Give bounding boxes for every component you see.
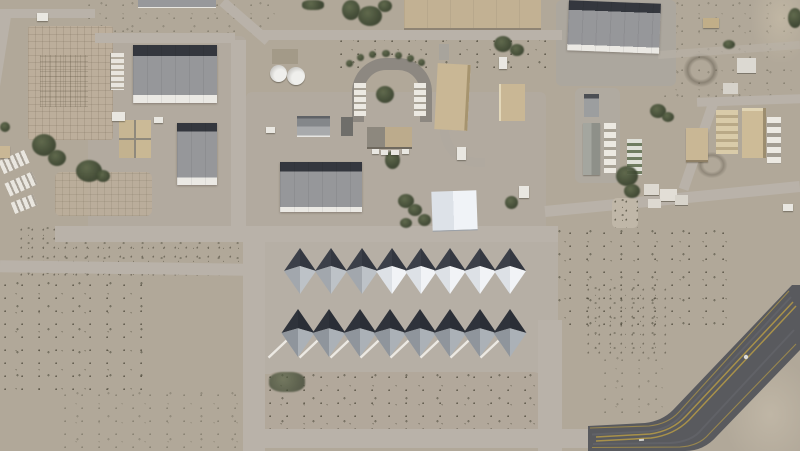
tent bbox=[346, 248, 378, 294]
tent bbox=[405, 248, 437, 294]
tent-layer bbox=[0, 0, 800, 451]
tent bbox=[315, 248, 347, 294]
tent bbox=[494, 248, 526, 294]
tent bbox=[434, 248, 466, 294]
satellite-image bbox=[0, 0, 800, 451]
tent bbox=[376, 248, 408, 294]
tent bbox=[464, 248, 496, 294]
tent bbox=[284, 248, 316, 294]
ground-stripe bbox=[269, 341, 287, 358]
